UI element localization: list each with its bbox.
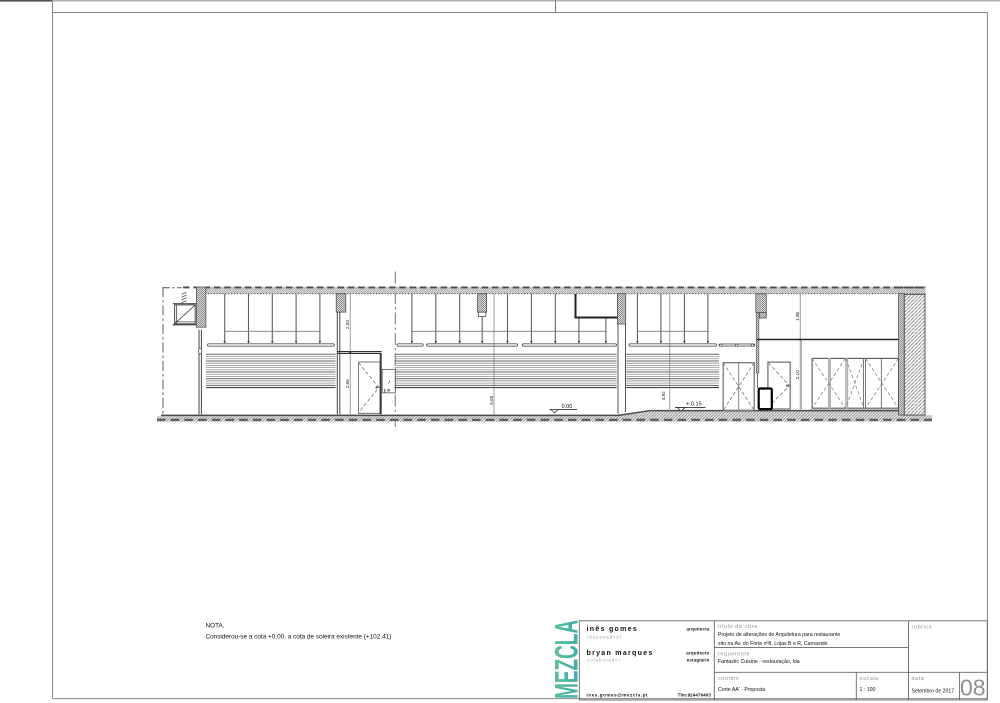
svg-text:título da obra: título da obra (718, 624, 758, 630)
svg-text:2.56: 2.56 (345, 379, 350, 388)
svg-text:requerente: requerente (718, 652, 750, 658)
svg-text:0.00: 0.00 (562, 404, 573, 410)
svg-text:rubrica: rubrica (912, 625, 933, 631)
svg-text:4.92: 4.92 (661, 391, 666, 400)
svg-text:1.95: 1.95 (795, 311, 800, 320)
svg-text:bryan marques: bryan marques (587, 650, 654, 657)
svg-text:contém: contém (718, 676, 739, 682)
svg-text:Considerou-se a cota +0.00, a: Considerou-se a cota +0.00, a cota de so… (206, 633, 392, 640)
svg-text:responsável: responsável (587, 634, 622, 639)
svg-text:Fantastic Cuisine - restauraçã: Fantastic Cuisine - restauração, lda (718, 659, 800, 665)
svg-text:ines.gomes@mezcla.pt: ines.gomes@mezcla.pt (587, 692, 649, 697)
svg-text:2.10: 2.10 (795, 370, 800, 379)
svg-text:sito na Av. do Forte nº8, Loja: sito na Av. do Forte nº8, Lojas B e R, C… (718, 641, 828, 647)
svg-text:escala: escala (860, 676, 880, 682)
svg-text:arquitecta: arquitecta (687, 627, 710, 632)
svg-text:5.05: 5.05 (489, 395, 494, 404)
svg-text:+ 0.15: + 0.15 (686, 402, 702, 408)
svg-text:Corte AA' - Proposta: Corte AA' - Proposta (718, 687, 765, 693)
svg-text:Projeto de alterações de Arqui: Projeto de alterações de Arquitetura par… (718, 632, 840, 638)
svg-text:estagiário: estagiário (687, 658, 710, 663)
svg-text:arquitecto: arquitecto (686, 650, 709, 655)
svg-text:2.50: 2.50 (345, 320, 350, 329)
svg-text:data: data (912, 676, 925, 682)
svg-text:08: 08 (960, 674, 986, 700)
svg-text:colaborador: colaborador (587, 658, 621, 663)
svg-text:NOTA.: NOTA. (206, 623, 225, 630)
svg-text:1 : 100: 1 : 100 (860, 687, 876, 693)
svg-text:inês gomes: inês gomes (587, 626, 639, 633)
svg-text:Tlm:924476403: Tlm:924476403 (678, 692, 712, 697)
svg-text:Setembro de 2017: Setembro de 2017 (912, 689, 955, 695)
